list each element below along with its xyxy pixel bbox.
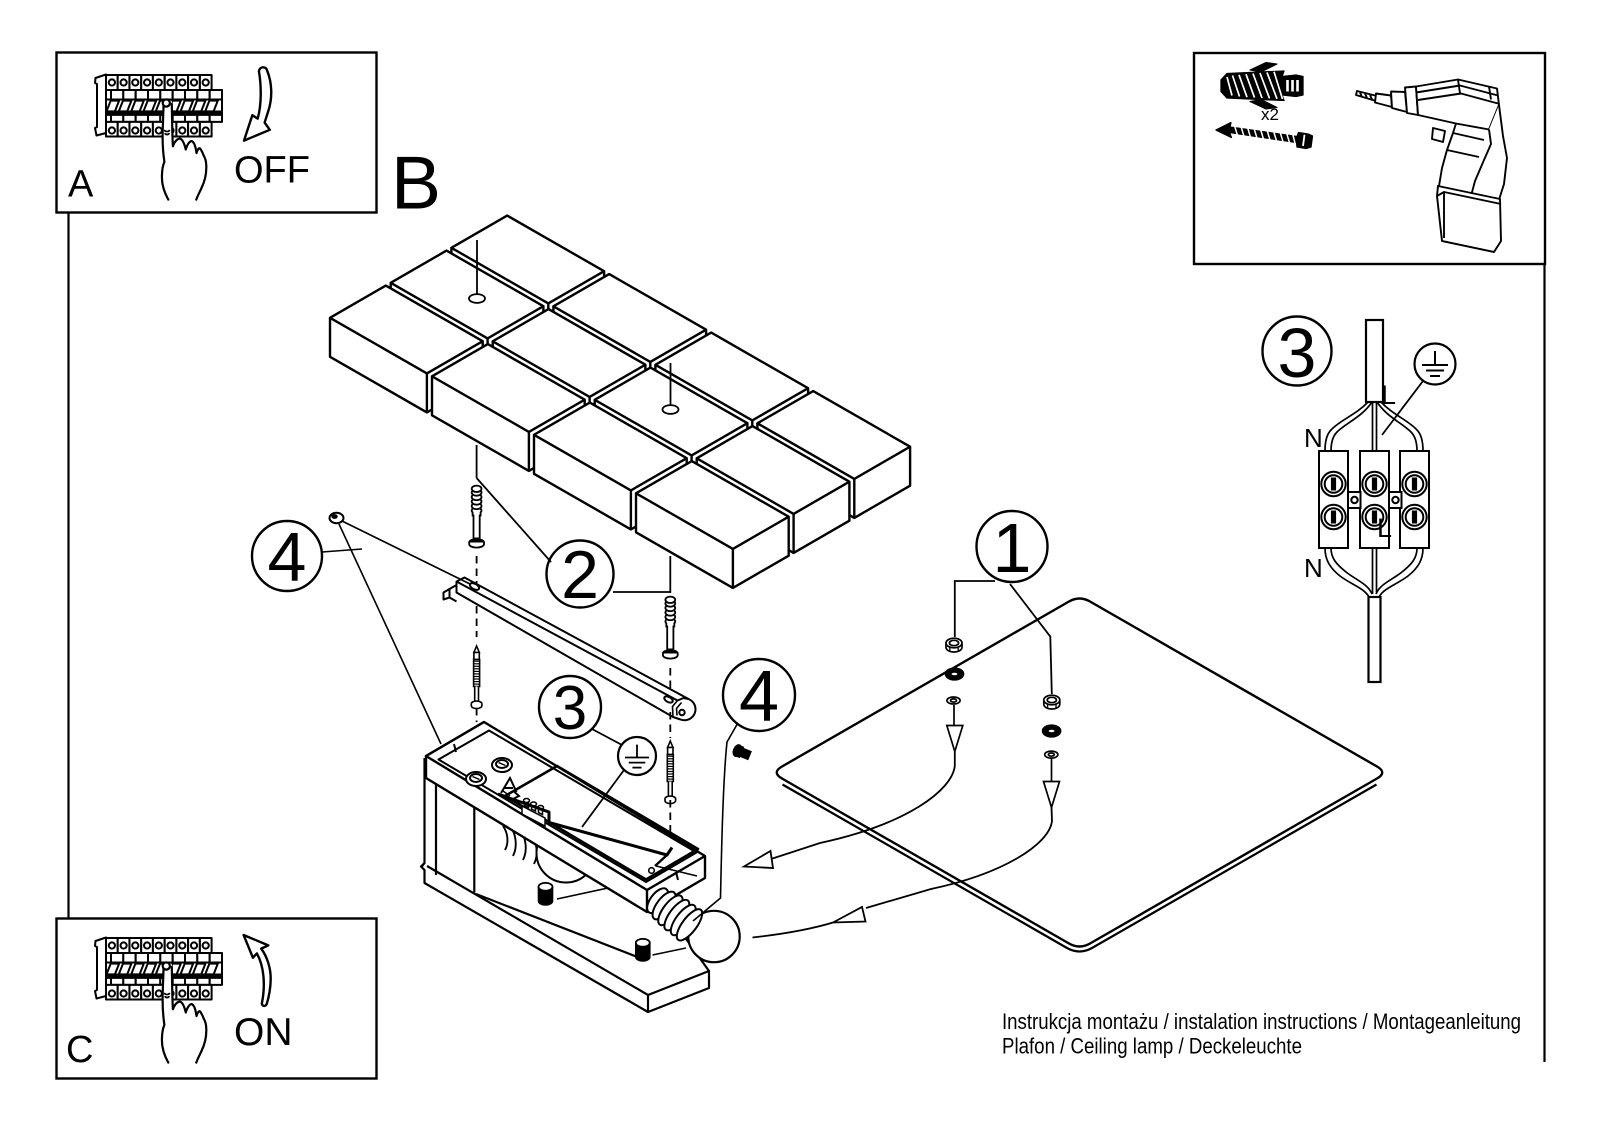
svg-text:x2: x2 bbox=[1261, 105, 1279, 124]
svg-text:ON: ON bbox=[234, 1011, 293, 1054]
svg-text:Plafon / Ceiling lamp / Deckel: Plafon / Ceiling lamp / Deckeleuchte bbox=[1002, 1034, 1302, 1059]
svg-text:2: 2 bbox=[561, 537, 599, 613]
svg-text:L: L bbox=[1377, 513, 1392, 543]
svg-text:4: 4 bbox=[268, 518, 307, 596]
svg-text:1: 1 bbox=[993, 509, 1032, 587]
svg-text:A: A bbox=[68, 164, 94, 206]
svg-text:C: C bbox=[66, 1029, 93, 1071]
svg-text:N: N bbox=[1304, 423, 1323, 453]
svg-text:N: N bbox=[1304, 553, 1323, 583]
svg-text:4: 4 bbox=[739, 657, 779, 737]
svg-text:B: B bbox=[391, 141, 441, 225]
svg-text:3: 3 bbox=[553, 674, 587, 743]
svg-text:Instrukcja montażu / instalati: Instrukcja montażu / instalation instruc… bbox=[1002, 1009, 1521, 1034]
svg-text:OFF: OFF bbox=[234, 150, 310, 192]
svg-text:3: 3 bbox=[1278, 314, 1317, 392]
svg-text:L: L bbox=[1381, 380, 1396, 410]
